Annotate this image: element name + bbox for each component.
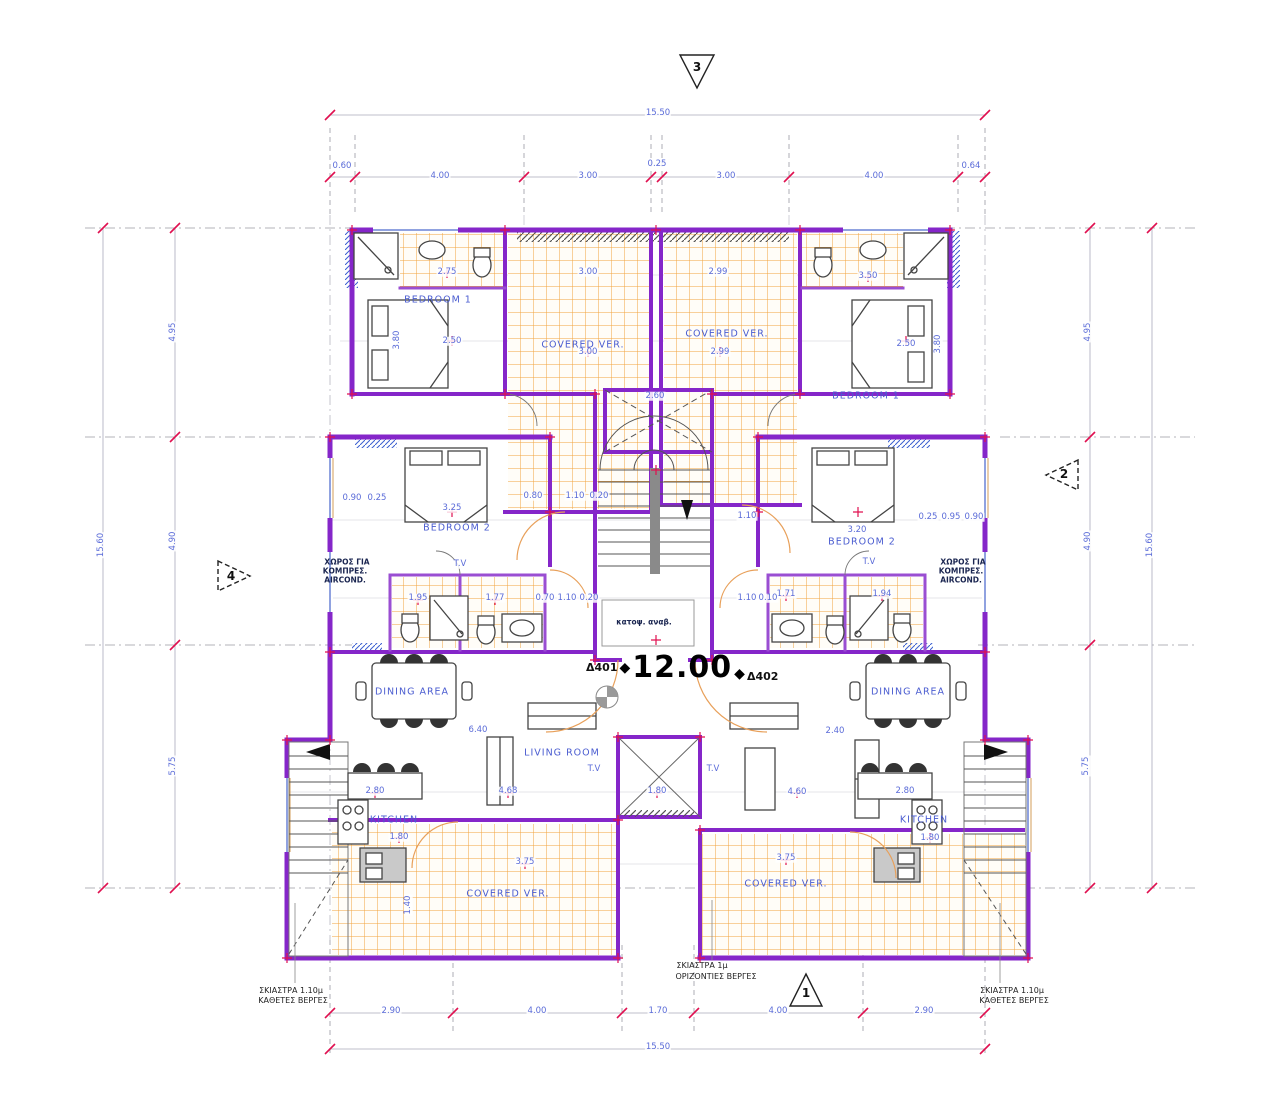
stair-arrow-left bbox=[306, 744, 330, 760]
diamond-icon: ◆ bbox=[734, 666, 745, 682]
level-symbol bbox=[596, 686, 618, 708]
stair-arrow-right bbox=[984, 744, 1008, 760]
veranda-tiles-top-left bbox=[508, 233, 649, 509]
diamond-icon: ◆ bbox=[619, 660, 630, 676]
veranda-tiles-top-right bbox=[664, 233, 797, 503]
level-annotation: Δ401 ◆ 12.00 ◆ Δ402 bbox=[586, 650, 778, 685]
veranda-tiles-bottom-left bbox=[332, 824, 616, 955]
section-marker-4 bbox=[218, 561, 250, 591]
apartment-tag-right: Δ402 bbox=[747, 670, 778, 683]
floor-plan-canvas: 15.500.604.003.000.253.004.000.642.904.0… bbox=[0, 0, 1280, 1106]
veranda-tiles-bottom-right bbox=[702, 834, 1026, 955]
apartment-tag-left: Δ401 bbox=[586, 661, 617, 674]
section-marker-1 bbox=[790, 974, 822, 1006]
section-marker-2 bbox=[1046, 460, 1078, 490]
section-marker-3 bbox=[680, 55, 714, 88]
stair-direction-arrow bbox=[681, 500, 693, 520]
floor-plan-drawing bbox=[0, 0, 1280, 1106]
level-value: 12.00 bbox=[632, 650, 732, 685]
